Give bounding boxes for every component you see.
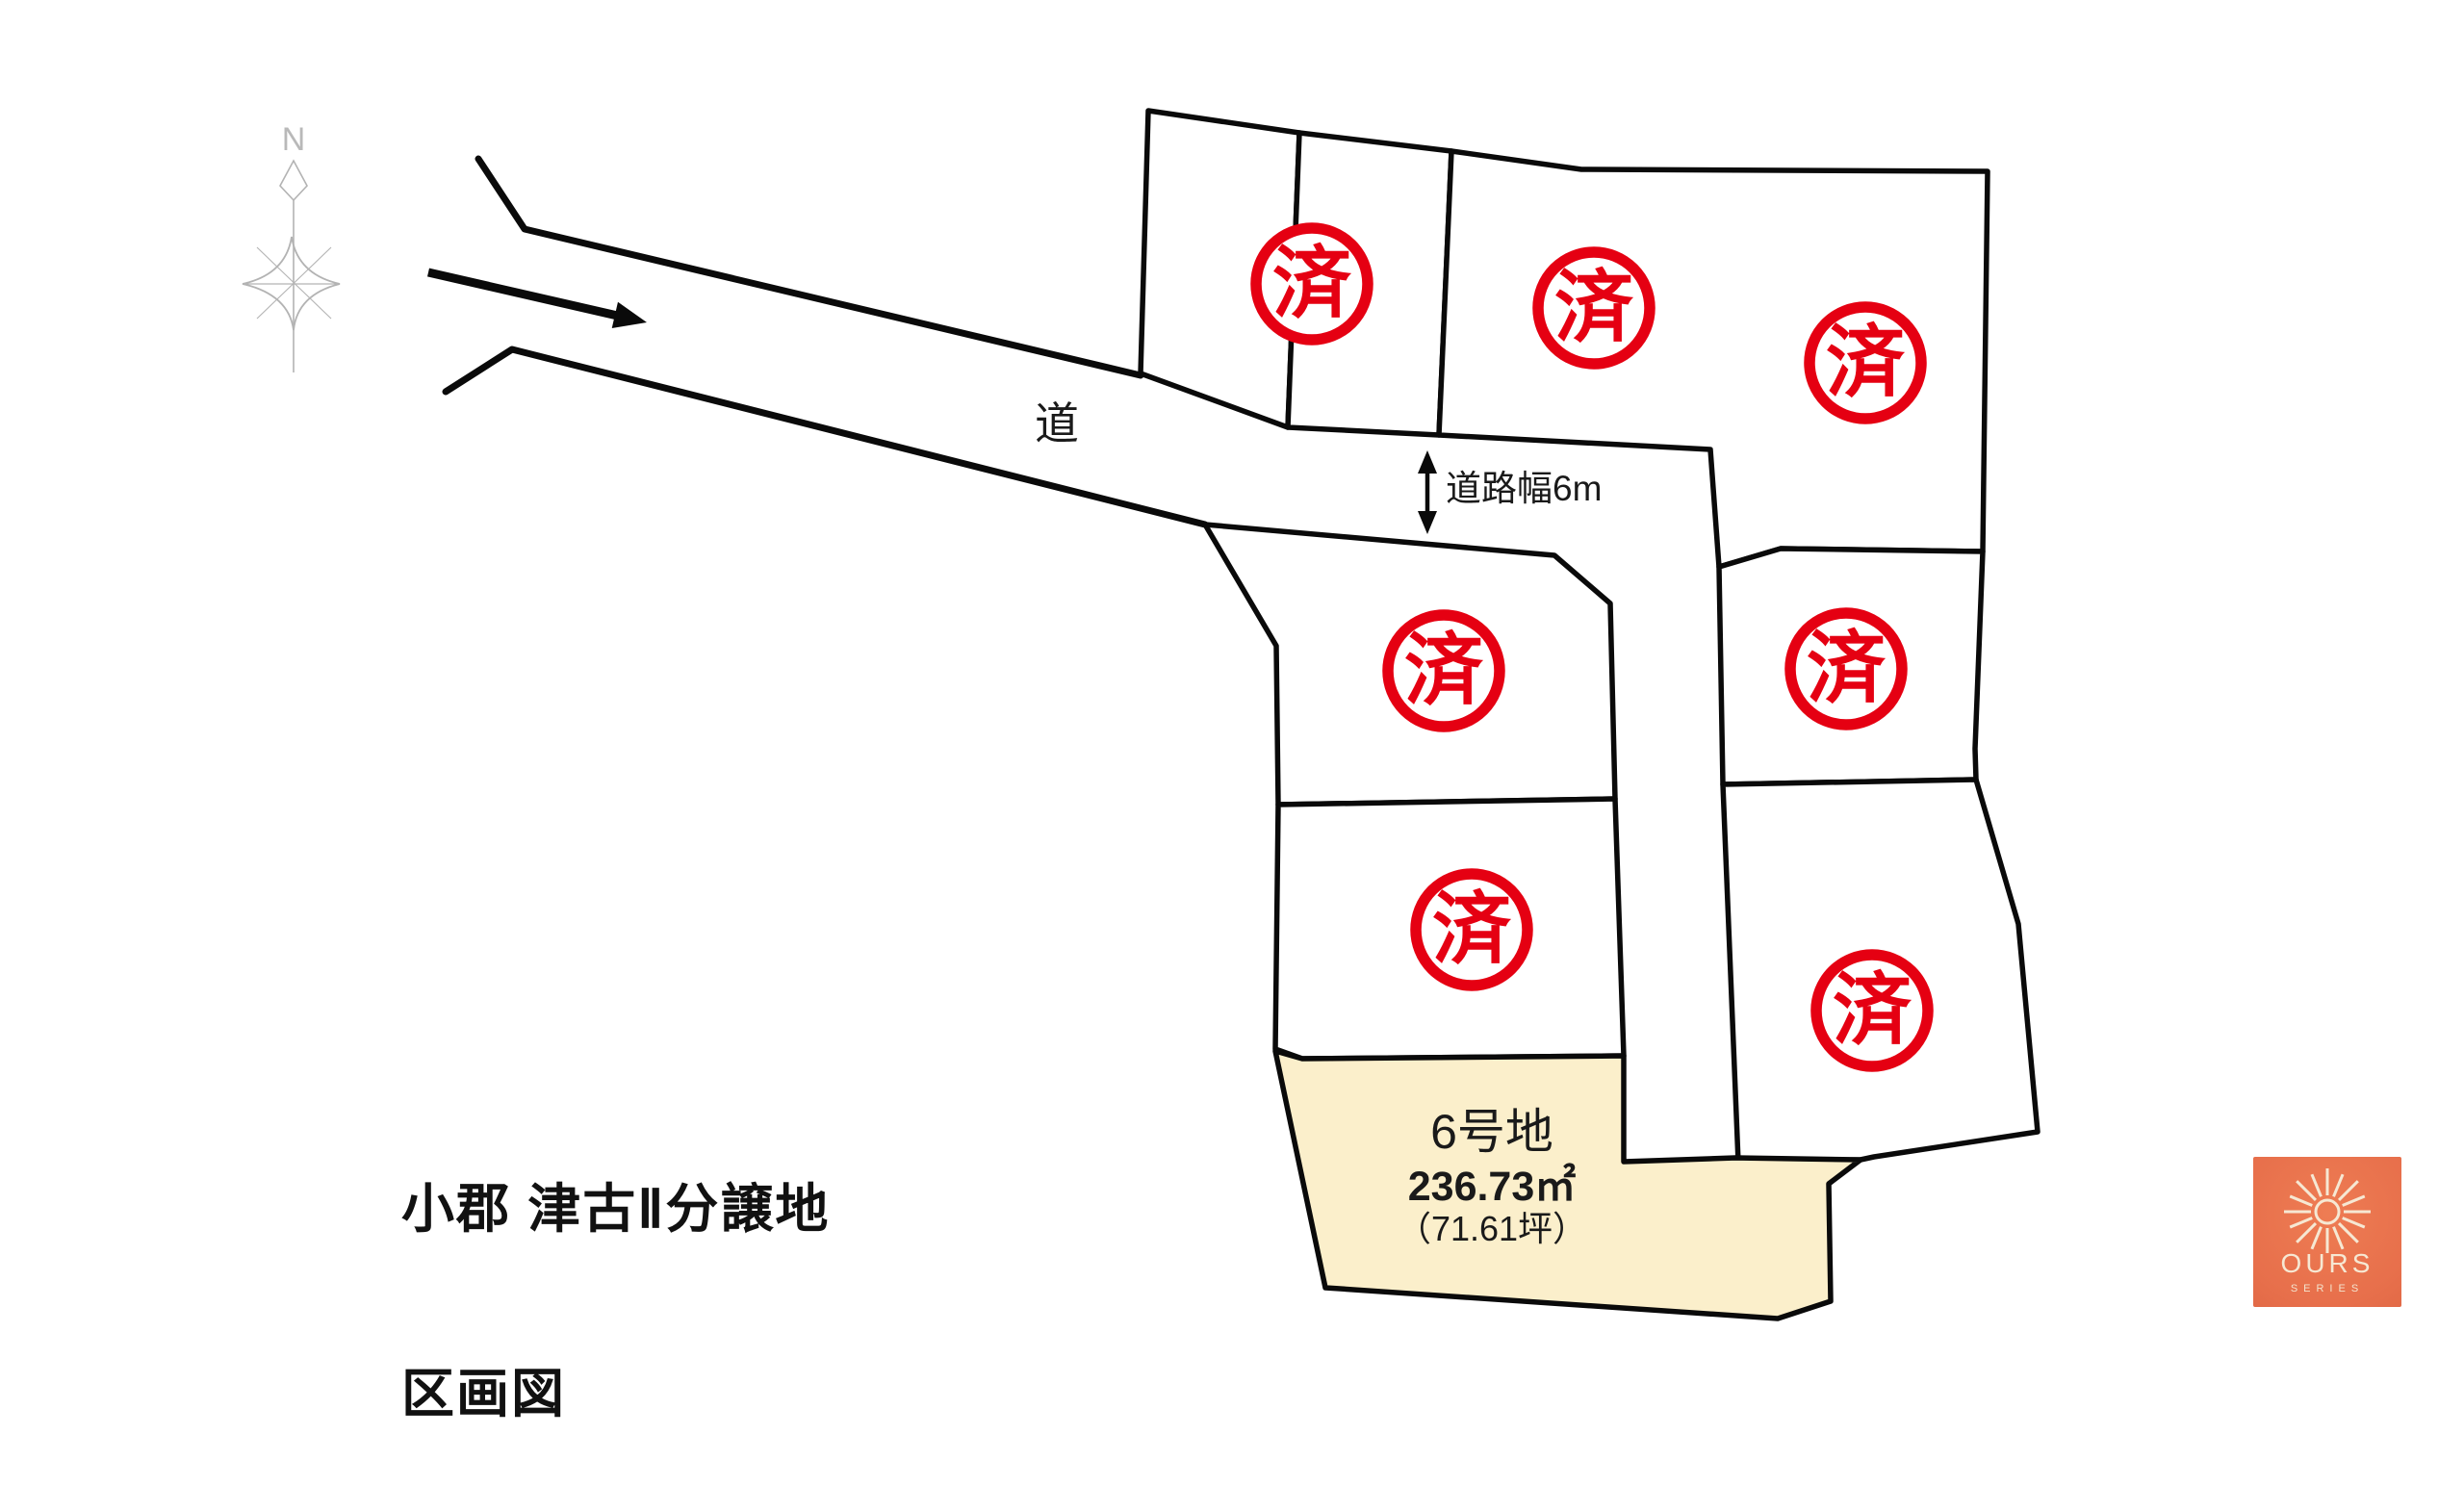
map-title: 小郡 津古Ⅱ分譲地 区画図 [401,1055,830,1486]
featured-lot-area-sqm: 236.73㎡ [1408,1163,1577,1210]
sunburst-ray [2297,1223,2316,1243]
road-width-dim-arrow-head [1418,450,1437,474]
lot-3-sold-stamp: 済 [1809,307,1921,419]
sunburst-ray [2312,1174,2322,1196]
featured-lot-area-tsubo: （71.61坪） [1397,1209,1587,1248]
sold-stamp-text: 済 [1432,886,1512,974]
road-width-label: 道路幅6m [1446,469,1602,508]
compass-needle [280,161,307,200]
sunburst-ray [2334,1227,2344,1249]
compass-rose-icon: N [243,121,340,372]
lot-2-sold-stamp: 済 [1538,252,1650,364]
sold-stamp-text: 済 [1404,628,1484,715]
map-title-line2: 区画図 [401,1363,830,1424]
featured-lot-name: 6号地 [1430,1105,1553,1159]
compass-north-label: N [282,121,306,158]
sunburst-ray [2339,1181,2358,1200]
sunburst-ray [2339,1223,2358,1243]
sold-stamp-text: 済 [1554,265,1634,352]
logo-sub-text: SERIES [2253,1283,2401,1294]
lot-5-sold-stamp: 済 [1416,874,1527,986]
sunburst-ray [2312,1227,2322,1249]
road-edge-top [478,159,1141,375]
sunburst-ray [2343,1218,2365,1228]
ours-series-logo: OURS SERIES [2253,1157,2401,1307]
lot-4-sold-stamp: 済 [1388,615,1500,727]
road-width-dim-arrow-head [1418,511,1437,534]
lot-1-sold-stamp: 済 [1256,228,1368,340]
sunburst-ray [2290,1196,2312,1206]
sunburst-icon [2253,1157,2401,1253]
sold-stamp-text: 済 [1807,626,1886,713]
sold-stamp-text: 済 [1272,241,1352,328]
road-label: 道 [1035,398,1079,448]
lot-7-sold-stamp: 済 [1816,955,1928,1066]
logo-brand-text: OURS [2253,1248,2401,1279]
lot-6-sold-stamp: 済 [1790,613,1902,725]
sunburst-ray [2343,1196,2365,1206]
map-title-line1: 小郡 津古Ⅱ分譲地 [401,1178,830,1240]
sold-stamp-text: 済 [1833,967,1912,1055]
road-direction-arrow-shaft [428,272,617,316]
sunburst-ray [2290,1218,2312,1228]
sold-stamp-text: 済 [1826,320,1906,407]
road-edge-bottom [446,349,1205,525]
road-direction-arrow-head [612,302,647,328]
sunburst-ray [2297,1181,2316,1200]
sunburst-ray [2334,1174,2344,1196]
subdivision-plat-svg: N 済済済済済済済 道道路幅6m6号地236.73㎡（71.61坪） [0,0,2464,1386]
